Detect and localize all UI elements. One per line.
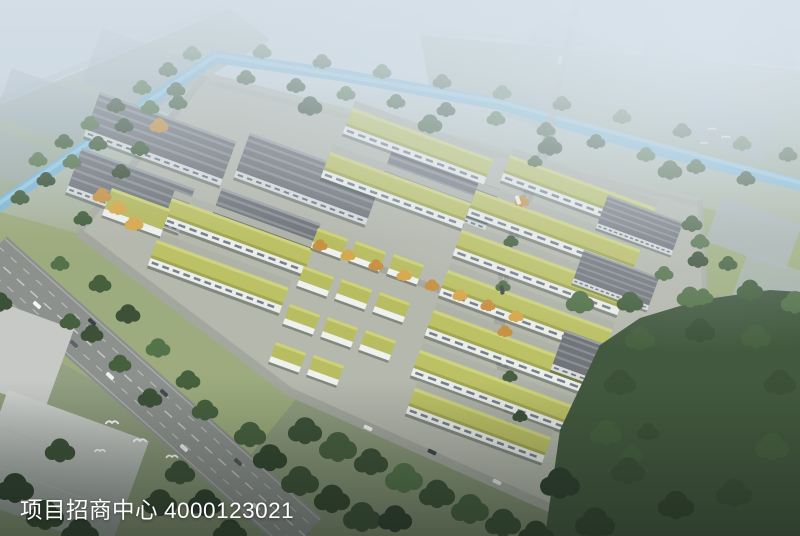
scene-svg bbox=[0, 0, 800, 536]
caption-label: 项目招商中心 bbox=[20, 498, 158, 523]
aerial-rendering: 项目招商中心4000123021 bbox=[0, 0, 800, 536]
caption-phone: 4000123021 bbox=[164, 498, 294, 523]
caption: 项目招商中心4000123021 bbox=[20, 493, 300, 525]
